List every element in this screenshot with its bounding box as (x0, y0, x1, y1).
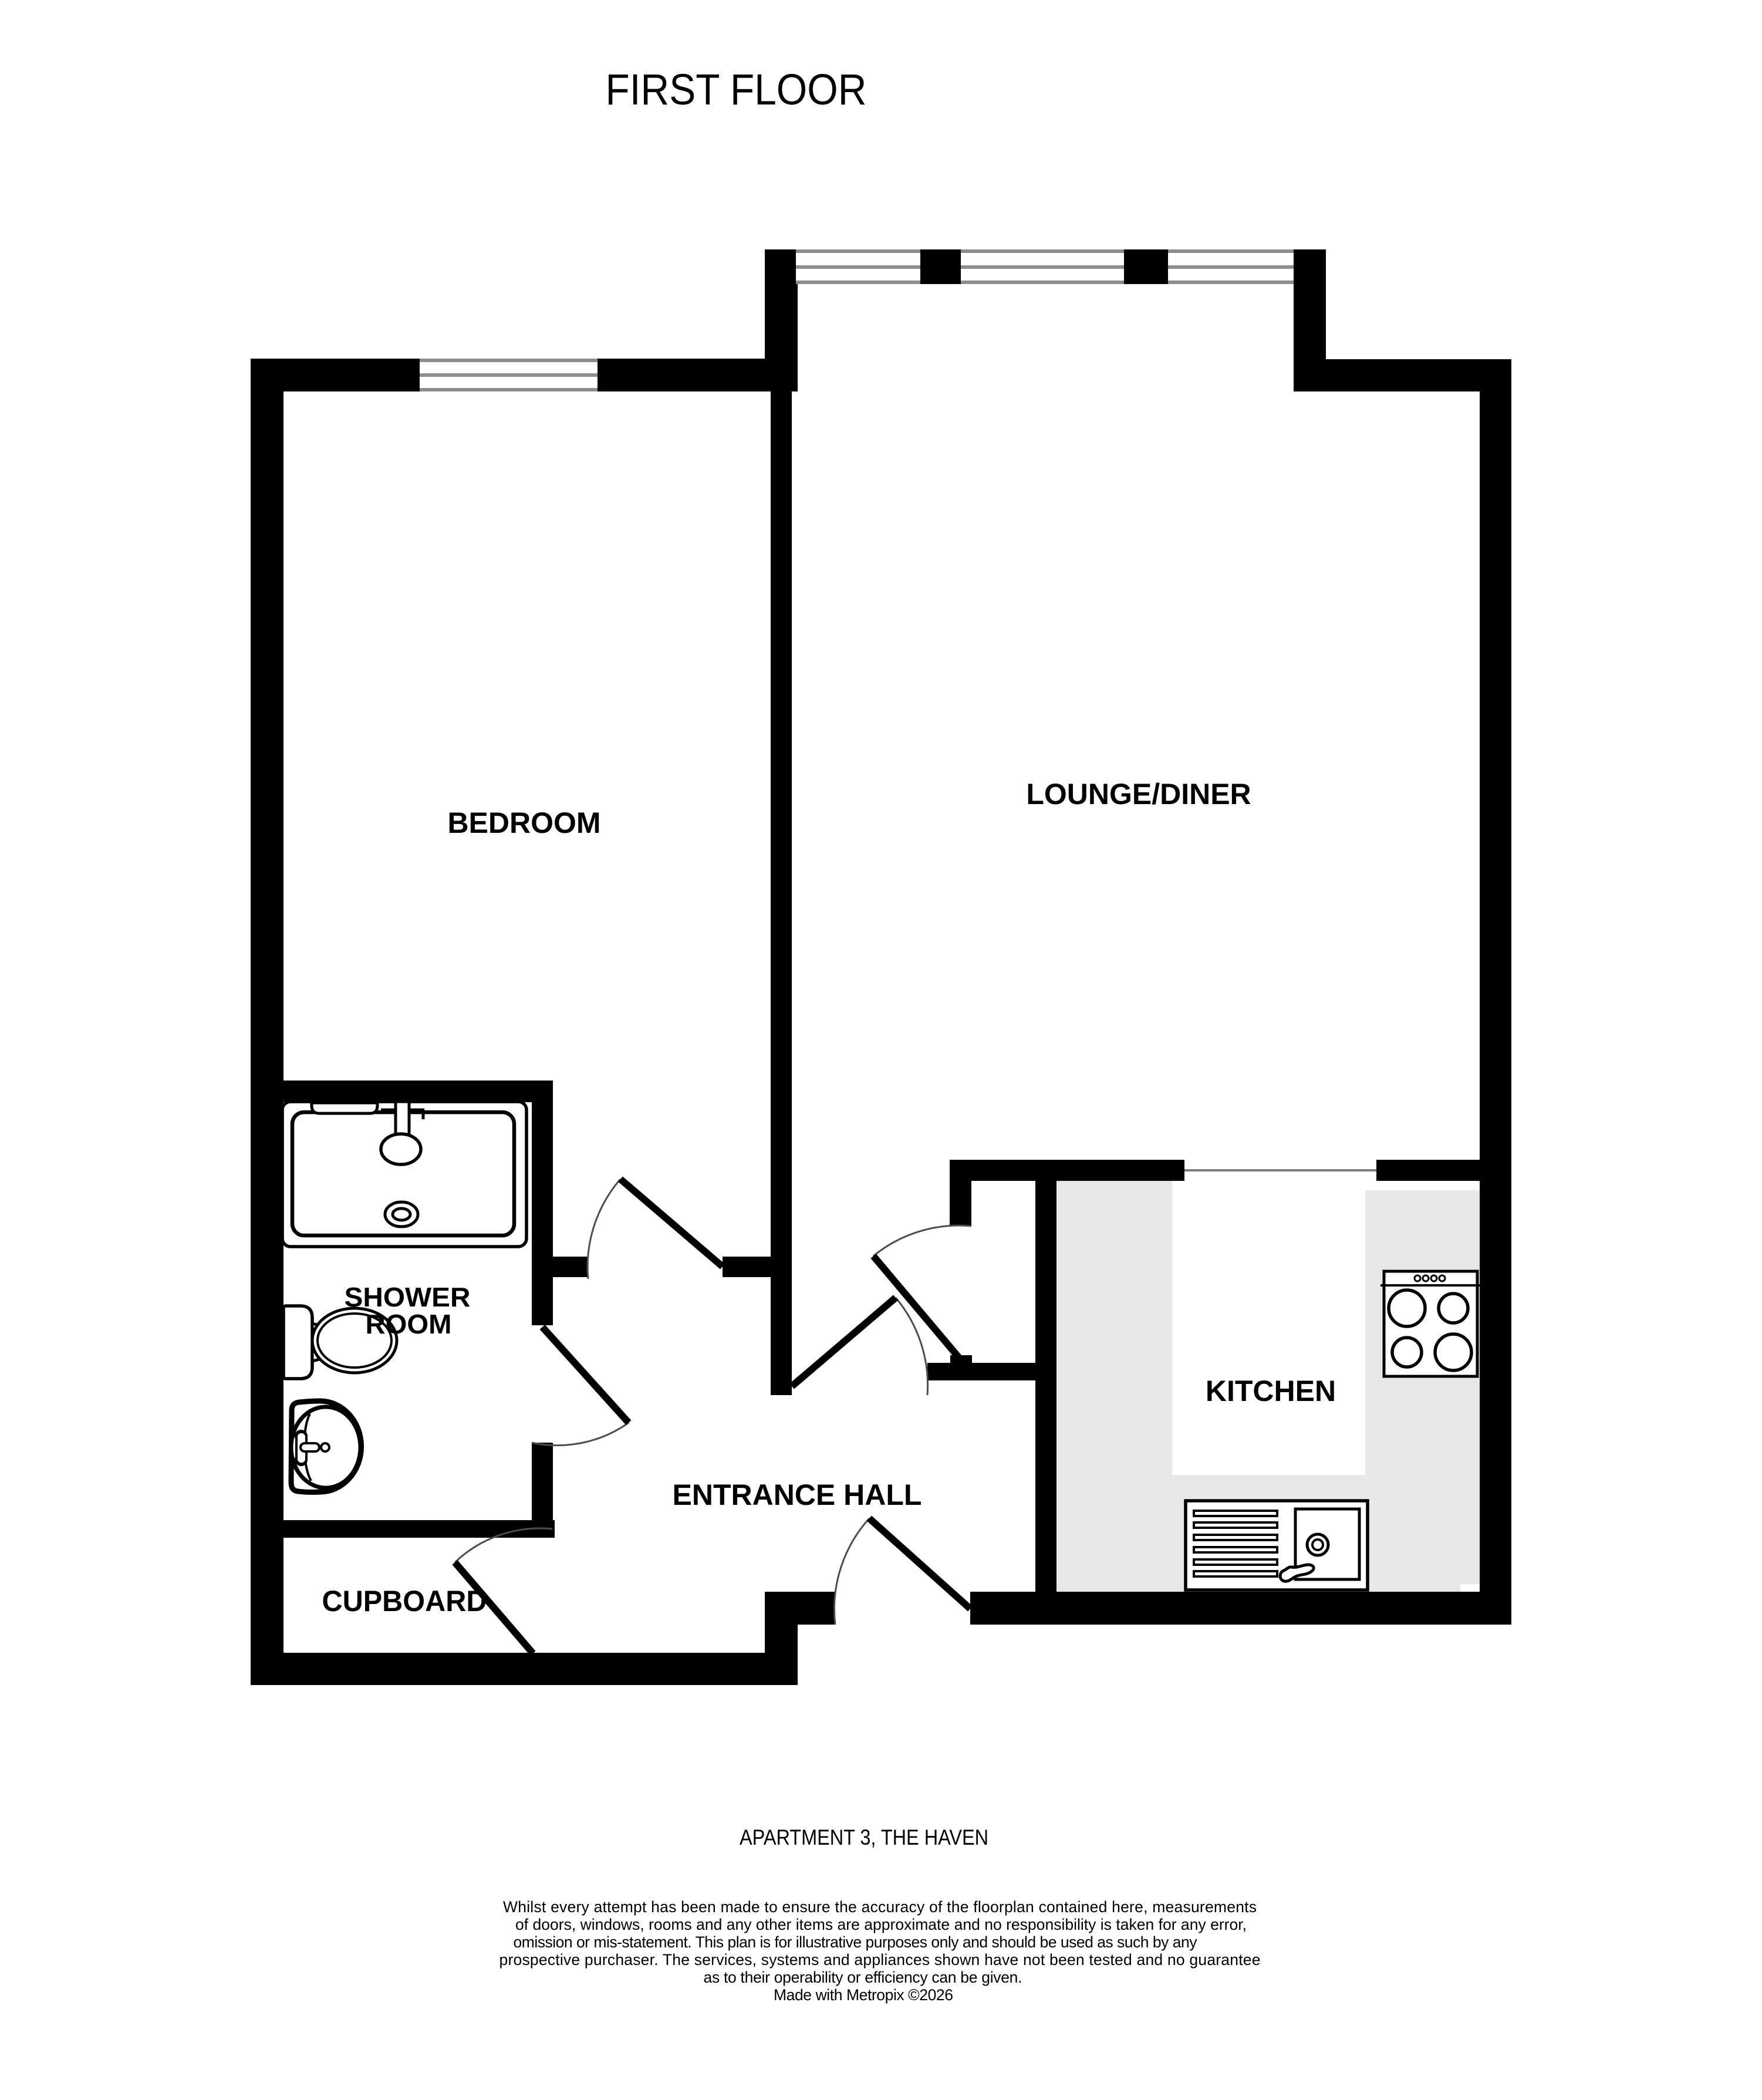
svg-text:as to their operability or eff: as to their operability or efficiency ca… (704, 1969, 1022, 1986)
svg-text:APARTMENT 3, THE HAVEN: APARTMENT 3, THE HAVEN (740, 1825, 988, 1849)
svg-text:ROOM: ROOM (366, 1309, 452, 1339)
svg-text:Whilst every attempt has been: Whilst every attempt has been made to en… (503, 1898, 1257, 1916)
svg-text:KITCHEN: KITCHEN (1206, 1375, 1336, 1407)
svg-text:ENTRANCE HALL: ENTRANCE HALL (673, 1478, 922, 1511)
svg-text:SHOWER: SHOWER (345, 1282, 471, 1312)
svg-text:CUPBOARD: CUPBOARD (322, 1585, 487, 1618)
svg-text:Made with Metropix ©2026: Made with Metropix ©2026 (774, 1986, 953, 2004)
svg-text:of doors, windows, rooms and a: of doors, windows, rooms and any other i… (515, 1916, 1247, 1933)
svg-text:omission or mis-statement. Thi: omission or mis-statement. This plan is … (514, 1933, 1198, 1951)
svg-text:prospective purchaser. The ser: prospective purchaser. The services, sys… (499, 1951, 1261, 1969)
svg-text:FIRST FLOOR: FIRST FLOOR (606, 65, 867, 114)
svg-text:BEDROOM: BEDROOM (447, 806, 600, 839)
svg-text:LOUNGE/DINER: LOUNGE/DINER (1026, 778, 1251, 811)
